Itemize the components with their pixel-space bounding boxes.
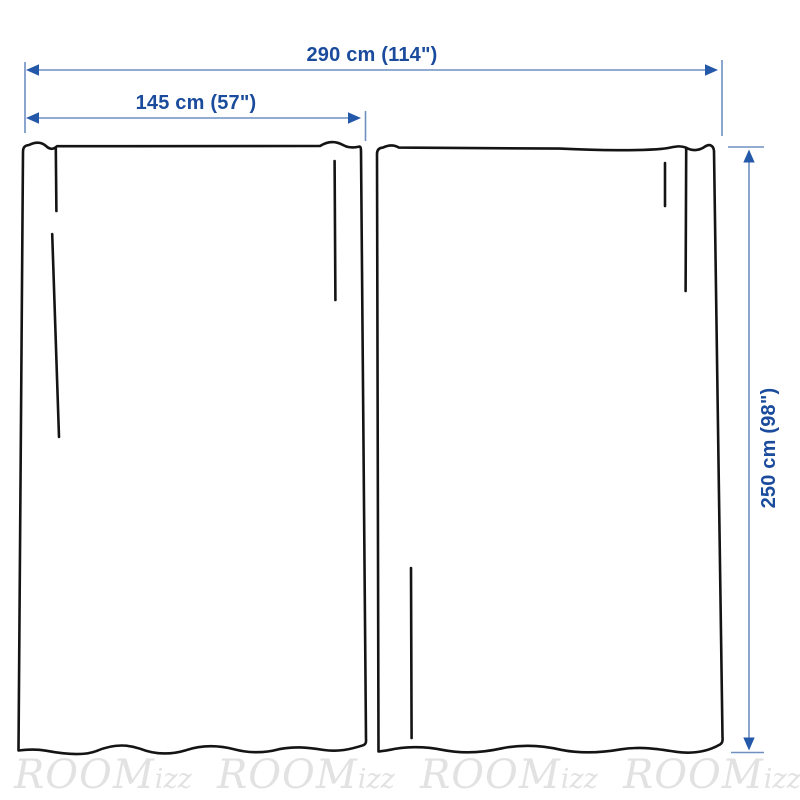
watermark-text-suffix: izz: [155, 764, 192, 795]
height-label: 250 cm (98"): [757, 348, 781, 548]
panel-width-label: 145 cm (57"): [26, 92, 366, 115]
watermark: ROOMizz: [5, 752, 201, 798]
right-curtain-panel-outline: [377, 145, 723, 753]
watermark-text-main: ROOM: [623, 752, 764, 798]
dimension-arrowheads: [26, 64, 755, 750]
watermark: ROOMizz: [208, 752, 404, 798]
watermark: ROOMizz: [411, 752, 607, 798]
right-panel-fold-line-3: [411, 568, 412, 738]
total-width-label: 290 cm (114"): [26, 44, 718, 67]
left-panel-fold-line-2: [52, 234, 59, 437]
dimension-lines: [25, 60, 764, 753]
left-panel-fold-line-3: [335, 161, 336, 300]
left-panel-fold-line-1: [56, 148, 57, 212]
watermark-text-suffix: izz: [358, 764, 395, 795]
watermark-text-suffix: izz: [561, 764, 598, 795]
watermark-text-main: ROOM: [420, 752, 561, 798]
watermark: ROOMizz: [614, 752, 800, 798]
curtain-dimension-diagram: 290 cm (114") 145 cm (57") 250 cm (98") …: [0, 0, 800, 800]
watermark-text-main: ROOM: [14, 752, 155, 798]
arrow-down-height-icon: [743, 738, 754, 751]
right-panel-fold-line-2: [686, 149, 687, 292]
curtain-panels: [19, 142, 723, 754]
watermark-text-main: ROOM: [217, 752, 358, 798]
arrow-up-height-icon: [743, 150, 754, 163]
diagram-graphics: [0, 0, 800, 800]
left-curtain-panel-outline: [19, 142, 367, 754]
watermark-text-suffix: izz: [764, 764, 800, 795]
